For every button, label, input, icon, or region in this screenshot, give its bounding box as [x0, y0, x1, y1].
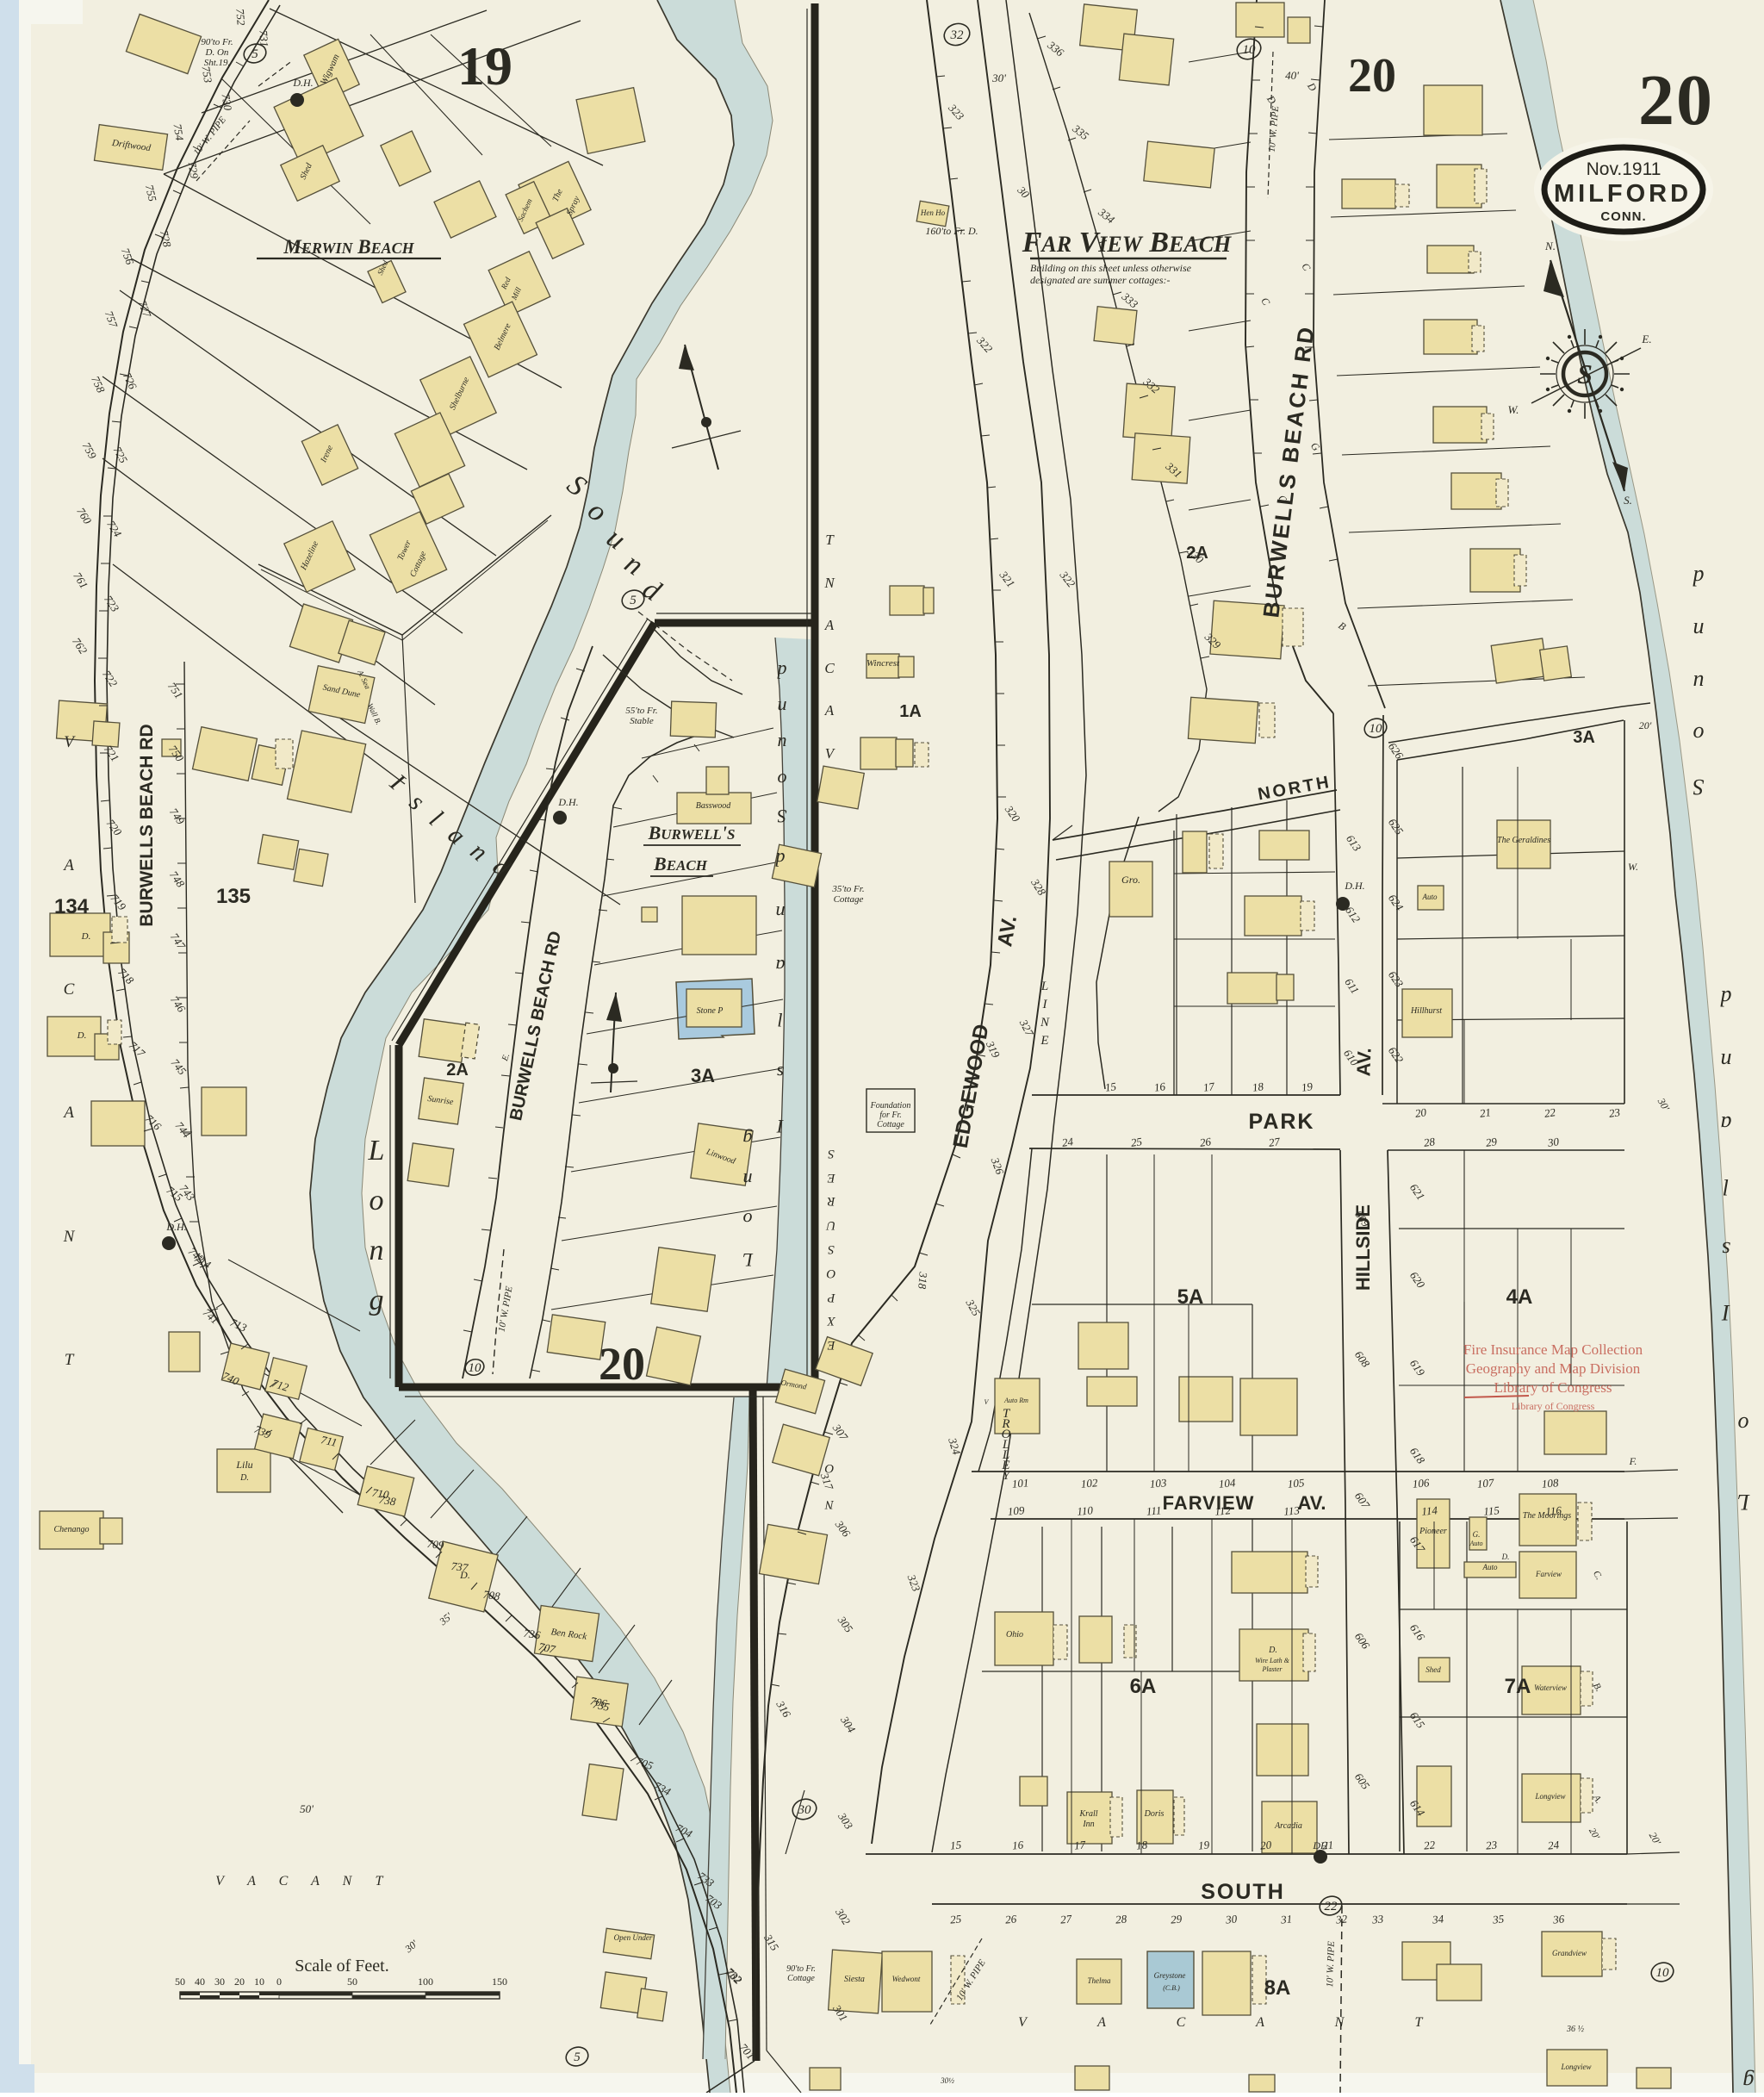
svg-text:Krall: Krall: [1078, 1809, 1097, 1819]
svg-text:Gro.: Gro.: [1121, 874, 1140, 886]
svg-text:n: n: [1721, 1048, 1732, 1073]
svg-text:Inn: Inn: [1082, 1820, 1094, 1829]
svg-text:for Fr.: for Fr.: [879, 1111, 902, 1120]
svg-text:10: 10: [1243, 43, 1257, 57]
svg-text:A: A: [824, 617, 835, 633]
svg-text:n: n: [778, 697, 787, 719]
svg-text:20: 20: [599, 1338, 645, 1390]
svg-text:R: R: [827, 1194, 835, 1208]
svg-text:150: 150: [492, 1976, 507, 1988]
svg-text:N.: N.: [1544, 240, 1556, 252]
svg-text:designated are summer cottages: designated are summer cottages:-: [1030, 274, 1171, 286]
svg-text:o: o: [778, 769, 787, 791]
svg-text:108: 108: [1541, 1476, 1559, 1490]
svg-text:20: 20: [1638, 60, 1714, 140]
svg-text:20: 20: [1348, 49, 1396, 103]
svg-text:(C.B.): (C.B.): [1163, 1984, 1180, 1992]
svg-text:A: A: [1096, 2015, 1106, 2030]
svg-text:C: C: [824, 660, 835, 676]
svg-text:17: 17: [1073, 1838, 1086, 1851]
svg-text:10: 10: [1370, 722, 1383, 736]
svg-text:g: g: [743, 1129, 753, 1150]
svg-text:MERWIN BEACH: MERWIN BEACH: [283, 236, 414, 258]
svg-text:S: S: [828, 1242, 835, 1256]
svg-text:Stone P: Stone P: [697, 1006, 724, 1016]
svg-text:D.: D.: [1268, 1646, 1277, 1655]
svg-text:102: 102: [1080, 1476, 1098, 1490]
svg-text:737: 737: [450, 1559, 469, 1574]
svg-text:90'to Fr.: 90'to Fr.: [201, 37, 233, 47]
svg-text:4A: 4A: [1506, 1285, 1533, 1309]
svg-text:L: L: [1737, 1490, 1750, 1515]
svg-text:MILFORD: MILFORD: [1554, 180, 1692, 208]
svg-text:Shed: Shed: [1425, 1665, 1441, 1674]
svg-text:32: 32: [950, 28, 965, 42]
svg-text:DH: DH: [1312, 1839, 1329, 1851]
svg-text:u: u: [1693, 670, 1705, 695]
svg-text:Hen Ho: Hen Ho: [920, 208, 946, 217]
svg-text:5: 5: [630, 594, 637, 607]
svg-text:134: 134: [54, 895, 90, 918]
svg-text:730: 730: [220, 93, 235, 112]
svg-text:20: 20: [234, 1976, 245, 1988]
svg-text:Ohio: Ohio: [1006, 1630, 1023, 1640]
svg-text:Siesta: Siesta: [844, 1975, 865, 1984]
svg-text:50': 50': [300, 1802, 314, 1815]
svg-text:CONN.: CONN.: [1600, 209, 1646, 224]
svg-text:I: I: [1042, 998, 1048, 1011]
svg-text:FAR VIEW BEACH: FAR VIEW BEACH: [1022, 227, 1232, 258]
svg-text:S: S: [828, 1147, 835, 1161]
svg-text:Nov.1911: Nov.1911: [1587, 159, 1662, 179]
svg-text:34: 34: [1431, 1912, 1444, 1926]
svg-text:A: A: [310, 1874, 320, 1889]
svg-text:10: 10: [254, 1976, 264, 1988]
svg-text:30': 30': [991, 72, 1006, 84]
svg-text:22: 22: [1325, 1900, 1339, 1913]
svg-text:5A: 5A: [1177, 1285, 1204, 1309]
svg-text:O: O: [826, 1266, 835, 1280]
svg-text:A: A: [824, 702, 835, 719]
svg-text:N: N: [1040, 1016, 1050, 1030]
svg-text:50: 50: [175, 1976, 185, 1988]
svg-text:24: 24: [1061, 1135, 1074, 1149]
svg-text:23: 23: [1608, 1105, 1621, 1120]
svg-text:28: 28: [1115, 1912, 1127, 1926]
svg-text:n: n: [743, 1169, 753, 1191]
svg-text:36 ½: 36 ½: [1566, 2025, 1585, 2034]
svg-text:n: n: [370, 1235, 384, 1266]
svg-text:l: l: [1723, 1174, 1729, 1199]
svg-text:d: d: [1720, 986, 1732, 1011]
svg-text:Farview: Farview: [1535, 1570, 1562, 1578]
svg-text:n: n: [1693, 618, 1705, 643]
svg-text:6A: 6A: [1130, 1675, 1157, 1698]
svg-text:G.: G.: [1473, 1530, 1481, 1539]
svg-text:Waterview: Waterview: [1534, 1683, 1567, 1692]
svg-text:115: 115: [1483, 1503, 1500, 1518]
svg-text:L: L: [742, 1249, 754, 1271]
svg-text:Auto: Auto: [1469, 1540, 1482, 1547]
svg-text:Longview: Longview: [1561, 2063, 1592, 2071]
svg-text:24: 24: [1547, 1838, 1560, 1851]
svg-text:32: 32: [1334, 1912, 1348, 1926]
svg-text:Auto: Auto: [1482, 1563, 1498, 1571]
svg-text:d: d: [1693, 565, 1705, 590]
svg-text:N: N: [824, 1497, 835, 1511]
svg-text:19: 19: [457, 35, 512, 96]
svg-text:D.H.: D.H.: [557, 796, 578, 808]
svg-text:20: 20: [1259, 1838, 1272, 1851]
svg-text:L: L: [368, 1135, 385, 1167]
svg-text:106: 106: [1412, 1476, 1430, 1490]
svg-text:P: P: [827, 1291, 835, 1304]
svg-text:26: 26: [1004, 1912, 1017, 1926]
svg-text:30½: 30½: [940, 2076, 954, 2085]
svg-text:15: 15: [1104, 1080, 1117, 1094]
svg-text:D.H.: D.H.: [165, 1221, 186, 1233]
svg-text:Wincrest: Wincrest: [866, 658, 900, 669]
svg-text:E: E: [827, 1171, 835, 1185]
svg-text:29: 29: [1170, 1912, 1183, 1926]
svg-text:SOUTH: SOUTH: [1201, 1880, 1285, 1904]
svg-text:Chenango: Chenango: [53, 1525, 89, 1534]
svg-text:F.: F.: [1629, 1455, 1637, 1467]
svg-text:22: 22: [1423, 1838, 1436, 1851]
svg-text:C: C: [64, 980, 75, 999]
svg-text:C: C: [279, 1874, 289, 1889]
svg-text:s: s: [1722, 1237, 1730, 1262]
svg-text:27: 27: [1059, 1912, 1072, 1926]
svg-text:o: o: [1738, 1412, 1749, 1437]
svg-text:110: 110: [1077, 1503, 1094, 1518]
svg-text:752: 752: [233, 8, 247, 26]
svg-text:35'to Fr.: 35'to Fr.: [831, 884, 864, 894]
svg-text:Longview: Longview: [1535, 1792, 1566, 1801]
svg-text:36: 36: [1551, 1912, 1565, 1926]
svg-text:Grandview: Grandview: [1552, 1949, 1587, 1957]
svg-text:D.: D.: [239, 1473, 249, 1483]
svg-text:21: 21: [1479, 1105, 1492, 1120]
svg-text:3A: 3A: [1573, 728, 1595, 747]
svg-text:N: N: [63, 1228, 76, 1246]
svg-text:160'to Fr. D.: 160'to Fr. D.: [925, 225, 978, 237]
svg-text:T: T: [1415, 2015, 1424, 2030]
svg-text:a: a: [1721, 1111, 1732, 1136]
svg-text:AV.: AV.: [1297, 1492, 1326, 1514]
svg-text:D.: D.: [81, 931, 91, 942]
svg-text:Greystone: Greystone: [1154, 1971, 1186, 1980]
svg-text:a: a: [776, 955, 786, 977]
svg-text:Pioneer: Pioneer: [1419, 1527, 1447, 1536]
svg-text:25: 25: [1130, 1135, 1143, 1149]
svg-text:33: 33: [1370, 1912, 1384, 1926]
svg-text:Stable: Stable: [630, 716, 654, 726]
svg-text:738: 738: [378, 1493, 397, 1509]
svg-text:A: A: [62, 856, 74, 874]
svg-text:114: 114: [1421, 1503, 1438, 1518]
svg-text:A: A: [62, 1104, 74, 1122]
svg-text:D. On: D. On: [205, 47, 229, 58]
svg-text:A: A: [1255, 2015, 1264, 2030]
svg-text:18: 18: [1135, 1838, 1148, 1851]
svg-text:n: n: [776, 902, 786, 924]
svg-text:30: 30: [798, 1803, 812, 1817]
svg-text:8A: 8A: [1264, 1976, 1291, 2000]
svg-text:o: o: [1693, 722, 1705, 747]
svg-text:D.: D.: [1501, 1553, 1510, 1561]
svg-text:40: 40: [195, 1976, 205, 1988]
svg-text:X: X: [827, 1314, 836, 1328]
svg-text:18: 18: [1252, 1080, 1264, 1094]
svg-text:5: 5: [574, 2050, 581, 2064]
svg-text:16: 16: [1153, 1080, 1166, 1094]
svg-text:o: o: [743, 1209, 753, 1230]
svg-text:BURWELLS BEACH RD: BURWELLS BEACH RD: [137, 724, 157, 926]
svg-text:5: 5: [252, 47, 258, 61]
svg-text:105: 105: [1287, 1476, 1305, 1490]
svg-text:709: 709: [426, 1537, 445, 1552]
svg-text:S.: S.: [1624, 494, 1632, 507]
svg-text:l: l: [778, 1009, 783, 1030]
svg-text:104: 104: [1218, 1476, 1236, 1490]
svg-text:C: C: [1177, 2015, 1186, 2030]
svg-text:25: 25: [949, 1912, 962, 1926]
svg-text:31: 31: [1279, 1912, 1292, 1926]
svg-text:30: 30: [1546, 1135, 1560, 1149]
svg-text:103: 103: [1149, 1476, 1167, 1490]
svg-text:22: 22: [1543, 1105, 1556, 1120]
svg-text:116: 116: [1545, 1503, 1562, 1518]
svg-text:15: 15: [949, 1838, 962, 1851]
svg-text:Wire Lath &: Wire Lath &: [1255, 1657, 1289, 1665]
svg-text:736: 736: [523, 1627, 542, 1642]
svg-text:E: E: [827, 1338, 835, 1352]
svg-text:Wedwont: Wedwont: [892, 1975, 921, 1983]
svg-text:L: L: [1040, 980, 1048, 993]
svg-text:Fire Insurance Map Collection: Fire Insurance Map Collection: [1463, 1341, 1643, 1358]
svg-text:D.: D.: [77, 1030, 87, 1041]
svg-text:30: 30: [1224, 1912, 1238, 1926]
svg-text:40': 40': [1285, 69, 1299, 82]
svg-text:W.: W.: [1628, 861, 1638, 873]
svg-text:Cottage: Cottage: [787, 1974, 815, 1983]
svg-text:10′ W. PIPE: 10′ W. PIPE: [1325, 1941, 1337, 1988]
svg-text:Scale of Feet.: Scale of Feet.: [295, 1957, 388, 1976]
svg-text:W.: W.: [1508, 403, 1519, 416]
svg-text:754: 754: [171, 123, 187, 142]
svg-text:D.H.: D.H.: [1344, 880, 1364, 892]
svg-text:90'to Fr.: 90'to Fr.: [786, 1964, 816, 1974]
svg-text:Cottage: Cottage: [877, 1120, 904, 1129]
svg-text:Geography and Map Division: Geography and Map Division: [1466, 1360, 1641, 1377]
svg-text:753: 753: [200, 65, 215, 84]
svg-text:17: 17: [1202, 1080, 1215, 1094]
svg-text:FARVIEW: FARVIEW: [1163, 1492, 1255, 1514]
svg-text:T: T: [65, 1351, 75, 1369]
svg-text:100: 100: [418, 1976, 433, 1988]
svg-text:The Geraldines: The Geraldines: [1497, 836, 1550, 845]
svg-text:10: 10: [469, 1361, 482, 1375]
svg-text:Cottage: Cottage: [834, 894, 864, 905]
svg-text:A: A: [246, 1874, 256, 1889]
svg-text:Auto: Auto: [1422, 893, 1438, 901]
svg-text:109: 109: [1007, 1503, 1025, 1518]
svg-text:Library of Congress: Library of Congress: [1512, 1400, 1595, 1412]
svg-text:Building on this sheet unless: Building on this sheet unless otherwise: [1030, 262, 1192, 274]
svg-text:E: E: [1040, 1034, 1048, 1048]
svg-text:Lilu: Lilu: [235, 1459, 252, 1471]
svg-text:Open Under: Open Under: [614, 1933, 653, 1942]
svg-text:I: I: [1721, 1300, 1730, 1325]
svg-text:Basswood: Basswood: [696, 801, 732, 811]
svg-text:731: 731: [257, 29, 270, 47]
svg-text:23: 23: [1485, 1838, 1498, 1851]
svg-text:0: 0: [276, 1976, 282, 1988]
svg-text:g: g: [370, 1285, 384, 1316]
svg-text:20': 20': [1639, 719, 1652, 731]
svg-text:30: 30: [214, 1976, 225, 1988]
svg-text:E.: E.: [1641, 333, 1651, 345]
svg-text:27: 27: [1268, 1135, 1281, 1149]
svg-text:29: 29: [1485, 1135, 1498, 1149]
svg-text:135: 135: [216, 885, 251, 908]
svg-text:g: g: [1743, 2069, 1755, 2093]
svg-text:S: S: [1693, 775, 1705, 800]
svg-text:Arcadia: Arcadia: [1274, 1821, 1302, 1831]
svg-text:Foundation: Foundation: [870, 1101, 911, 1111]
svg-text:112: 112: [1214, 1503, 1232, 1518]
svg-text:35: 35: [1491, 1912, 1505, 1926]
svg-text:20: 20: [1414, 1105, 1427, 1120]
svg-text:19: 19: [1301, 1080, 1314, 1094]
svg-text:16: 16: [1011, 1838, 1024, 1851]
svg-text:55'to Fr.: 55'to Fr.: [625, 706, 657, 716]
svg-text:N: N: [823, 575, 835, 591]
svg-text:Thelma: Thelma: [1088, 1976, 1112, 1985]
svg-text:d: d: [775, 849, 786, 870]
svg-text:D.H.: D.H.: [292, 77, 313, 89]
svg-text:729: 729: [186, 161, 202, 180]
svg-text:1A: 1A: [899, 702, 922, 721]
svg-text:S: S: [778, 806, 787, 827]
svg-text:Doris: Doris: [1144, 1809, 1165, 1819]
svg-text:d: d: [777, 661, 787, 682]
svg-text:U: U: [825, 1218, 835, 1232]
svg-text:113: 113: [1283, 1503, 1301, 1518]
svg-text:318: 318: [916, 1271, 930, 1290]
svg-text:PARK: PARK: [1249, 1110, 1315, 1134]
svg-text:107: 107: [1476, 1476, 1494, 1490]
svg-text:s: s: [777, 1062, 785, 1084]
svg-text:2A: 2A: [446, 1061, 469, 1080]
svg-text:u: u: [778, 733, 787, 755]
svg-text:101: 101: [1011, 1476, 1029, 1490]
svg-text:10: 10: [1656, 1966, 1670, 1980]
svg-text:Hillhurst: Hillhurst: [1410, 1006, 1442, 1016]
svg-text:N: N: [1334, 2015, 1345, 2030]
svg-text:28: 28: [1423, 1135, 1436, 1149]
svg-text:T: T: [376, 1874, 384, 1889]
svg-text:Plaster: Plaster: [1261, 1665, 1283, 1673]
svg-text:111: 111: [1146, 1503, 1162, 1517]
svg-text:50: 50: [347, 1976, 357, 1988]
svg-text:Library of Congress: Library of Congress: [1494, 1379, 1612, 1396]
svg-text:N: N: [342, 1874, 353, 1889]
svg-text:Auto Rm: Auto Rm: [1003, 1397, 1028, 1404]
svg-text:T: T: [825, 532, 835, 548]
svg-text:o: o: [370, 1185, 384, 1217]
svg-text:26: 26: [1199, 1135, 1212, 1149]
svg-text:3A: 3A: [691, 1065, 715, 1086]
svg-text:19: 19: [1197, 1838, 1210, 1851]
svg-text:708: 708: [482, 1588, 501, 1603]
